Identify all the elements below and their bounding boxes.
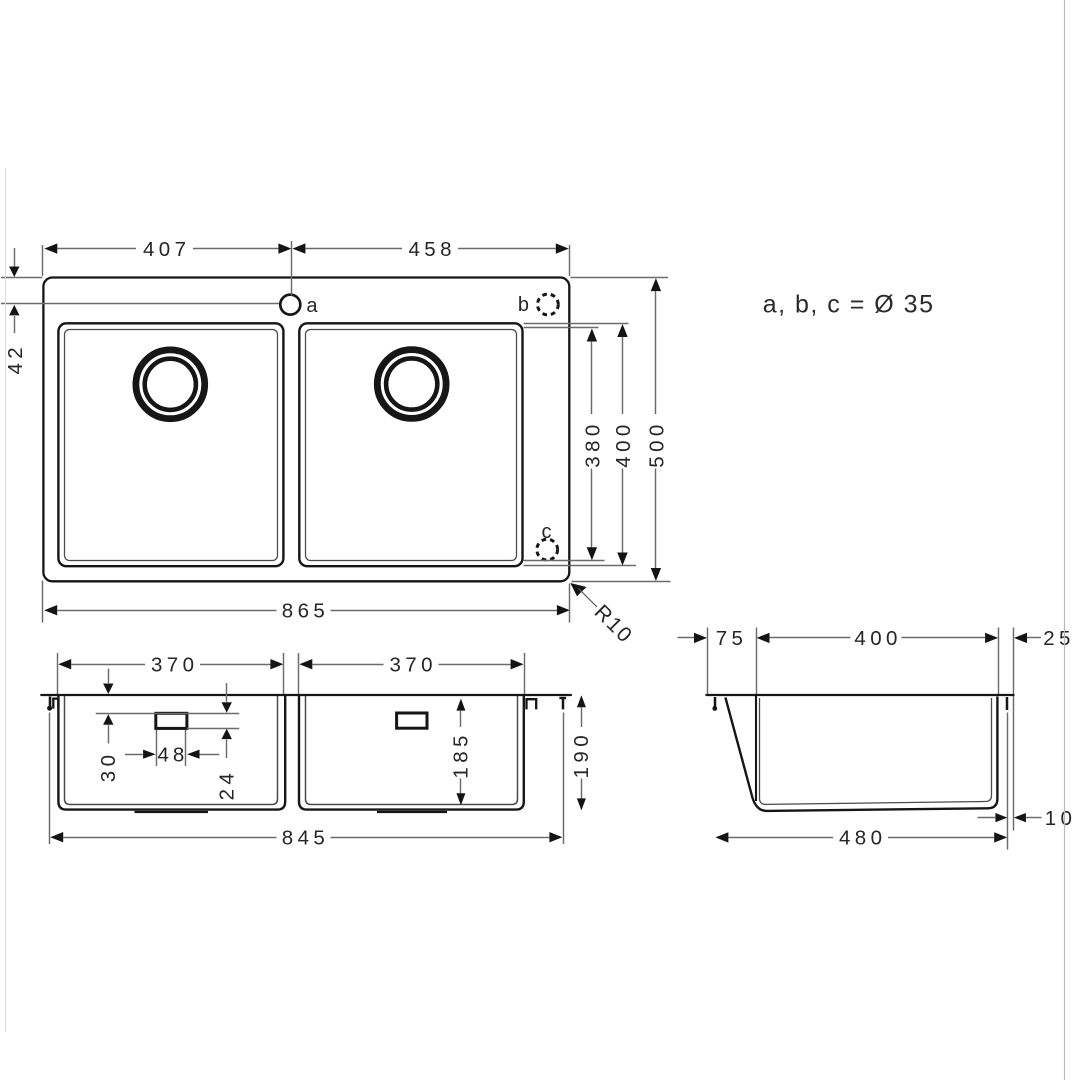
svg-text:458: 458: [408, 238, 455, 261]
svg-text:845: 845: [282, 826, 329, 849]
svg-text:400: 400: [612, 420, 635, 467]
svg-text:c: c: [542, 521, 552, 543]
svg-text:10: 10: [1045, 807, 1077, 830]
svg-text:370: 370: [151, 653, 198, 676]
svg-text:480: 480: [839, 827, 886, 850]
svg-text:42: 42: [4, 343, 27, 375]
svg-text:75: 75: [716, 627, 748, 650]
svg-text:500: 500: [646, 420, 669, 467]
svg-text:a, b, c = Ø 35: a, b, c = Ø 35: [763, 291, 935, 319]
svg-text:b: b: [518, 294, 529, 316]
svg-text:865: 865: [282, 599, 329, 622]
svg-text:48: 48: [157, 743, 188, 766]
svg-text:30: 30: [97, 751, 120, 783]
svg-text:24: 24: [216, 769, 239, 801]
svg-text:380: 380: [582, 420, 605, 467]
svg-text:400: 400: [854, 627, 901, 650]
svg-text:407: 407: [143, 238, 190, 261]
svg-text:190: 190: [570, 731, 593, 778]
svg-text:25: 25: [1043, 627, 1075, 650]
svg-text:a: a: [306, 295, 318, 317]
svg-text:185: 185: [450, 731, 473, 778]
svg-text:370: 370: [389, 653, 436, 676]
